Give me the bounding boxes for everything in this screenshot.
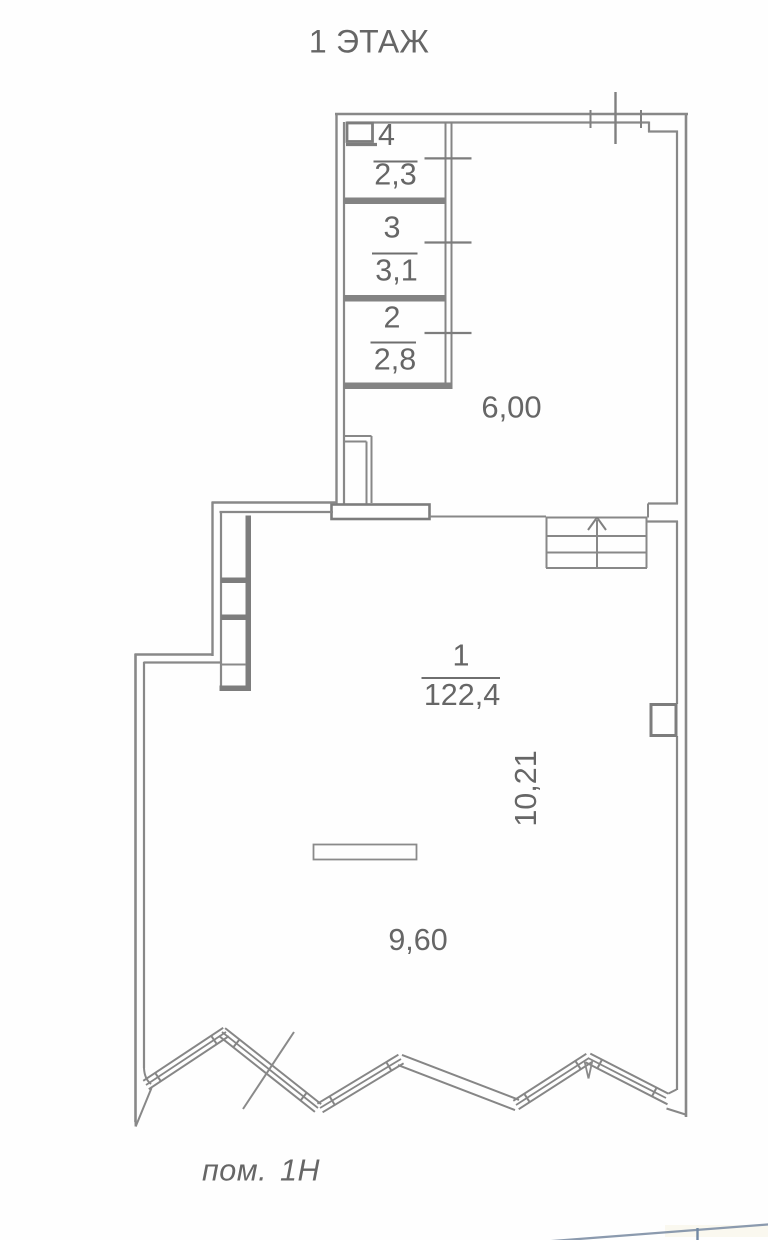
- svg-text:3: 3: [384, 211, 401, 245]
- svg-text:2: 2: [384, 301, 401, 335]
- svg-text:122,4: 122,4: [424, 678, 500, 712]
- svg-text:10,21: 10,21: [509, 750, 543, 826]
- svg-text:1 ЭТАЖ: 1 ЭТАЖ: [309, 24, 430, 60]
- svg-text:2,8: 2,8: [374, 343, 416, 377]
- svg-text:3,1: 3,1: [375, 254, 417, 288]
- svg-text:4: 4: [378, 118, 395, 152]
- svg-text:6,00: 6,00: [481, 390, 541, 425]
- svg-text:пом. 1Н: пом. 1Н: [202, 1154, 321, 1188]
- svg-text:9,60: 9,60: [388, 923, 447, 957]
- svg-text:1: 1: [453, 639, 470, 673]
- svg-text:2,3: 2,3: [374, 158, 416, 192]
